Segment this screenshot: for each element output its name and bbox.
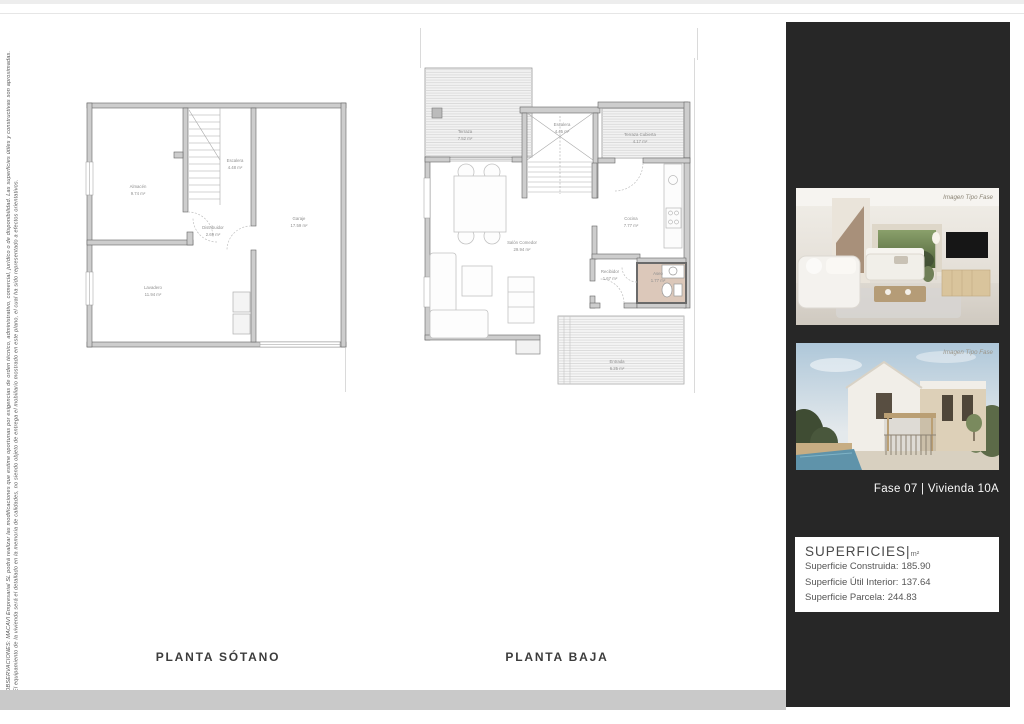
room-area: 11.94 m² [145, 292, 162, 297]
room-area: 17.59 m² [291, 223, 309, 228]
room-label: Escalera [554, 122, 571, 127]
row-label: Superficie Construida: [805, 561, 898, 572]
room-label: Aseo [653, 271, 663, 276]
row-value: 244.83 [888, 592, 917, 603]
interior-photo: Imagen Tipo Fase [796, 188, 999, 325]
room-area: 1.67 m² [603, 276, 618, 281]
plan-title-baja: PLANTA BAJA [418, 650, 696, 664]
room-area: 2.69 m² [206, 232, 221, 237]
page: { "disclaimer": { "line1": "OBSERVACIONE… [0, 0, 1024, 724]
plot-line [697, 28, 698, 60]
row-value: 137.64 [901, 577, 930, 588]
superficies-unit: m² [911, 549, 920, 558]
top-rule [0, 13, 1024, 14]
superficies-box: SUPERFICIES|m² Superficie Construida:185… [795, 537, 999, 612]
top-strip [0, 0, 1024, 4]
room-label: Cocina [624, 216, 638, 221]
room-area: 9.74 m² [131, 191, 146, 196]
row-label: Superficie Útil Interior: [805, 577, 898, 588]
superficies-title: SUPERFICIES [805, 544, 906, 559]
room-label: Almacén [130, 184, 147, 189]
row-value: 185.90 [901, 561, 930, 572]
footer-band [0, 690, 786, 710]
superficie-util-row: Superficie Útil Interior:137.64 [805, 575, 989, 591]
room-label: Entrada [609, 359, 625, 364]
row-label: Superficie Parcela: [805, 592, 885, 603]
superficie-parcela-row: Superficie Parcela:244.83 [805, 590, 989, 606]
room-area: 7.77 m² [624, 223, 639, 228]
fase-vivienda-label: Fase 07 | Vivienda 10A [874, 483, 999, 495]
photo-caption: Imagen Tipo Fase [943, 194, 993, 201]
floorplan-baja: Terraza 7.52 m² Escalera 4.45 m² Terraza… [418, 58, 696, 393]
room-label: Terraza Cubierta [624, 132, 656, 137]
disclaimer-line-2: El equipamiento de la vivienda será el d… [14, 28, 22, 692]
room-label: Lavadero [144, 285, 163, 290]
photo-caption: Imagen Tipo Fase [943, 349, 993, 356]
room-area: 6.25 m² [610, 366, 625, 371]
room-label: Salón Comedor [507, 240, 537, 245]
room-area: 1.77 m² [651, 278, 666, 283]
exterior-photo: Imagen Tipo Fase [796, 343, 999, 470]
room-label: Terraza [458, 129, 473, 134]
floorplan-sotano: Almacén 9.74 m² Escalera 4.48 m² Distrib… [83, 100, 353, 350]
info-panel: Imagen Tipo Fase [786, 22, 1010, 707]
plot-line [345, 348, 346, 392]
room-area: 7.52 m² [458, 136, 473, 141]
room-label: Recibidor [601, 269, 620, 274]
superficie-construida-row: Superficie Construida:185.90 [805, 559, 989, 575]
room-area: 4.17 m² [633, 139, 648, 144]
disclaimer: OBSERVACIONES: MACAVI Empresarial SL pod… [6, 28, 21, 692]
room-area: 29.94 m² [514, 247, 532, 252]
room-area: 4.48 m² [228, 165, 243, 170]
room-area: 4.45 m² [555, 129, 570, 134]
superficies-title-row: SUPERFICIES|m² [805, 544, 989, 559]
room-label: Escalera [227, 158, 244, 163]
plan-title-sotano: PLANTA SÓTANO [83, 650, 353, 664]
disclaimer-line-1: OBSERVACIONES: MACAVI Empresarial SL pod… [6, 28, 14, 692]
room-label: Garaje [293, 216, 307, 221]
room-label: Distribuidor [202, 225, 224, 230]
